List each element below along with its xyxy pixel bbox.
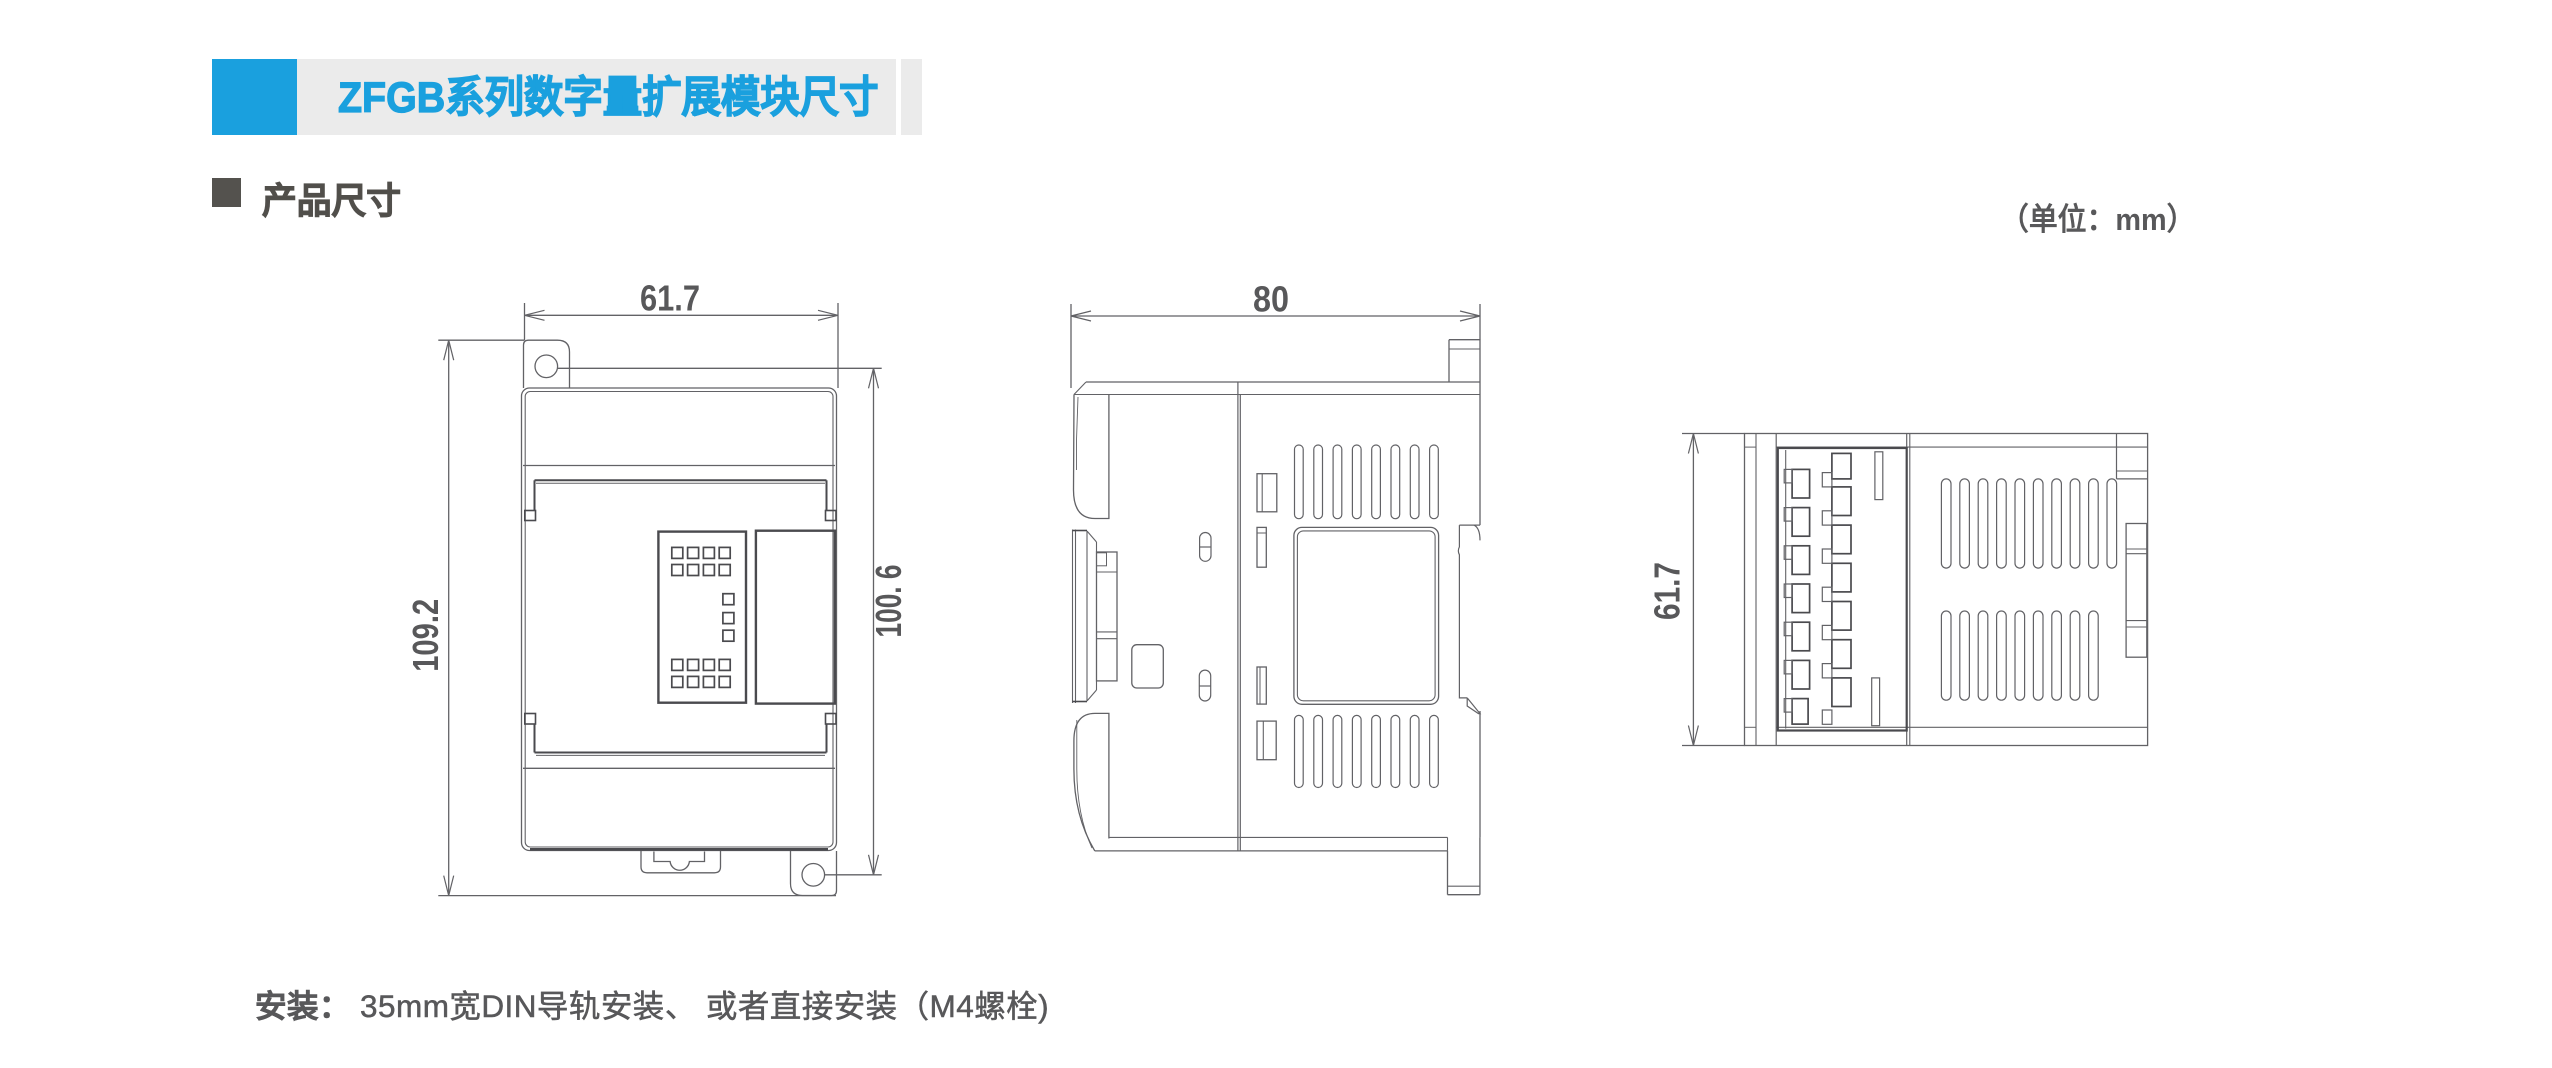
svg-text:61.7: 61.7 [640, 278, 700, 319]
svg-text:109.2: 109.2 [405, 599, 446, 672]
svg-text:61.7: 61.7 [1646, 562, 1687, 620]
svg-text:80: 80 [1253, 279, 1289, 320]
